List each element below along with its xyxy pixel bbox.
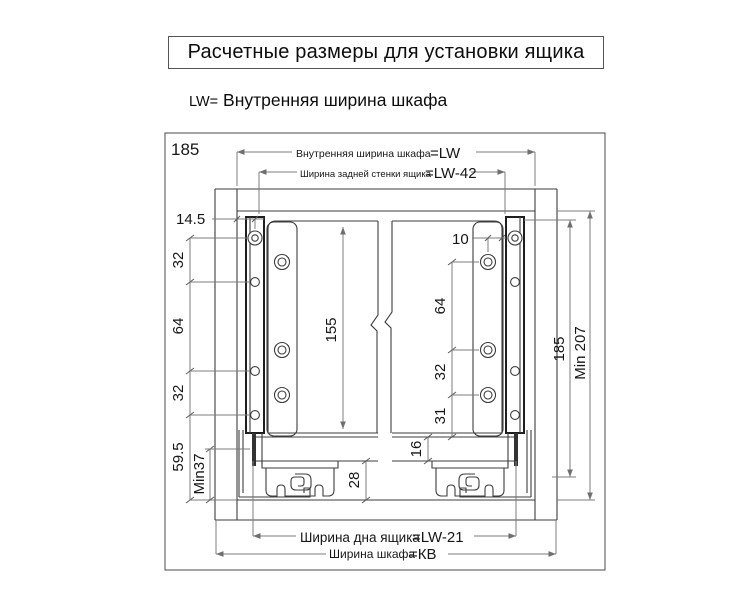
left-rail: [246, 217, 264, 433]
dim-bottom-width-value: =LW-21: [412, 529, 464, 546]
dim-min37: Min37: [191, 446, 250, 503]
dim-side-offset-value: 14.5: [176, 211, 205, 228]
dim-right-31: 31: [432, 408, 449, 425]
dim-min-height: Min 207: [572, 211, 590, 500]
dim-cabinet-width-label: Ширина шкафа: [329, 547, 415, 561]
dim-cabinet-width-value: =КВ: [409, 546, 437, 563]
dim-side-offset: 14.5: [176, 211, 264, 229]
drawing-frame: [165, 133, 605, 570]
technical-drawing: 185 Внутренняя ширина шкафа =LW Ширина з…: [0, 0, 750, 600]
drawer-bottom-panel: [255, 437, 515, 461]
dim-min37-value: Min37: [191, 454, 208, 495]
right-back-panel: [385, 221, 503, 436]
dim-right-32: 32: [432, 364, 449, 381]
dim-155-value: 155: [323, 317, 340, 342]
dim-inner-width-value: =LW: [430, 145, 461, 162]
dim-left-32a: 32: [170, 252, 187, 269]
drawer-installation-diagram: Расчетные размеры для установки ящика LW…: [0, 0, 750, 600]
dim-right-16: 16: [408, 441, 425, 458]
left-slide: [239, 430, 338, 497]
right-rail: [506, 217, 524, 433]
dim-back-width-label: Ширина задней стенки ящика: [300, 169, 432, 180]
dim-min207-value: Min 207: [572, 326, 589, 379]
cabinet-outline: [215, 189, 595, 520]
dim-185-value: 185: [551, 336, 568, 361]
dim-back-height: 155: [323, 227, 343, 429]
dim-right-64: 64: [432, 298, 449, 315]
corner-height-label: 185: [171, 140, 199, 159]
dim-28-value: 28: [346, 472, 363, 489]
dim-inner-width-label: Внутренняя ширина шкафа: [296, 148, 431, 160]
dim-hole-offset: 10: [452, 231, 506, 252]
dim-bottom-width: Ширина дна ящика =LW-21: [253, 461, 516, 546]
dim-left-32b: 32: [170, 385, 187, 402]
dim-left-64: 64: [170, 318, 187, 335]
dim-back-width-value: =LW-42: [425, 165, 477, 182]
dim-bottom-width-label: Ширина дна ящика: [300, 530, 420, 545]
dim-rail-height: 185: [524, 220, 576, 477]
dim-10-value: 10: [452, 231, 469, 248]
dim-left-59-5: 59.5: [170, 442, 187, 471]
dim-bottom-clearance: 28: [346, 458, 370, 503]
